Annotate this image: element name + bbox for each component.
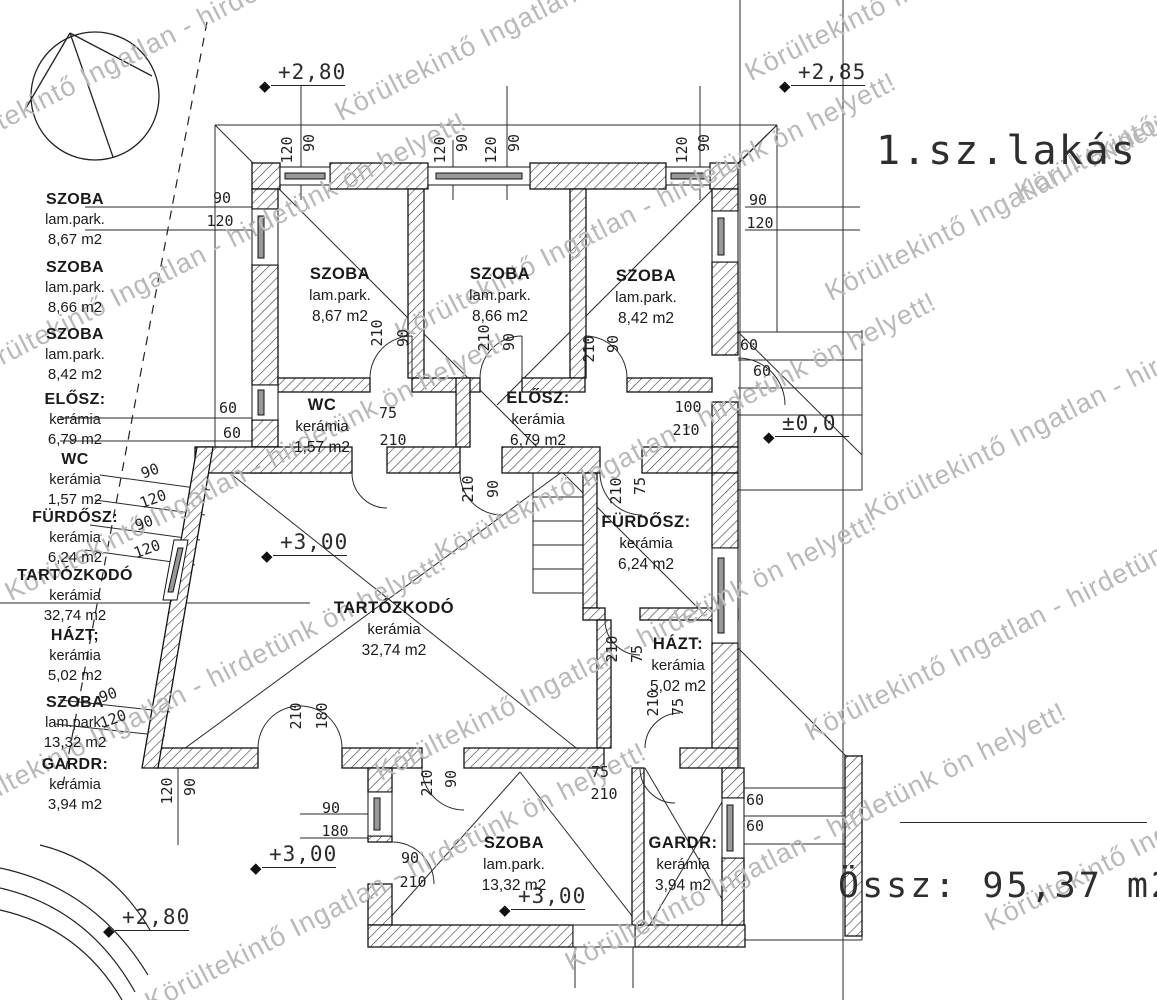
benchmark-icon: ◆ (763, 428, 775, 446)
dimension-label: 210 (580, 335, 598, 362)
dimension-label: 210 (607, 477, 625, 504)
dimension-label: 210 (644, 689, 662, 716)
dimension-label: 90 (322, 799, 340, 817)
room-material: kerámia (294, 416, 350, 437)
dimension-label: 60 (753, 362, 771, 380)
total-area-label: Össz: 95,37 m2 (838, 866, 1157, 906)
dimension-label: 120 (206, 212, 233, 230)
dimension-label: 75 (631, 477, 649, 495)
room-label: SZOBAlam.park.8,66 m2 (469, 264, 531, 327)
benchmark-icon: ◆ (779, 77, 791, 95)
dimension-label: 210 (418, 769, 436, 796)
elevation-value: +3,00 (518, 884, 586, 908)
room-label: TARTÓZKODÓkerámia32,74 m2 (334, 598, 454, 661)
dimension-label: 90 (394, 329, 412, 347)
elevation-value: ±0,0 (782, 411, 837, 435)
room-area: 6,79 m2 (506, 430, 570, 451)
room-name: FÜRDŐSZ: (601, 512, 690, 533)
room-area: 3,94 m2 (649, 875, 718, 896)
room-name: SZOBA (615, 266, 677, 287)
dimension-label: 210 (475, 324, 493, 351)
legend-room-material: lam.park. (0, 278, 150, 298)
dimension-label: 120 (673, 136, 691, 163)
legend-room-area: 5,02 m2 (0, 666, 150, 686)
room-material: lam.park. (482, 854, 547, 875)
legend-room-material: kerámia (0, 586, 150, 606)
room-material: kerámia (506, 409, 570, 430)
dimension-label: 210 (603, 635, 621, 662)
dimension-label: 120 (482, 136, 500, 163)
elevation-line (271, 85, 345, 86)
dimension-label: 210 (379, 431, 406, 449)
dimension-label: 90 (453, 134, 471, 152)
dimension-label: 90 (505, 134, 523, 152)
floorplan-page: Körültekintő Ingatlan - hirdetünk ön hel… (0, 0, 1157, 1000)
legend-divider (900, 822, 1147, 823)
elevation-value: +3,00 (280, 530, 348, 554)
legend-room-area: 3,94 m2 (0, 795, 150, 815)
dimension-label: 210 (590, 785, 617, 803)
legend-room-name: SZOBA (0, 190, 150, 210)
dimension-label: 60 (746, 791, 764, 809)
legend-entry: SZOBAlam.park.8,42 m2 (0, 325, 150, 385)
room-material: lam.park. (469, 285, 531, 306)
legend-room-name: HÁZT; (0, 626, 150, 646)
dimension-label: 90 (500, 333, 518, 351)
elevation-line (511, 909, 585, 910)
elevation-line (115, 930, 189, 931)
legend-room-area: 13,32 m2 (0, 733, 150, 753)
dimension-label: 90 (213, 189, 231, 207)
room-name: ELŐSZ: (506, 388, 570, 409)
room-material: kerámia (334, 619, 454, 640)
room-material: lam.park. (615, 287, 677, 308)
legend-room-material: lam.park. (0, 210, 150, 230)
room-material: kerámia (649, 854, 718, 875)
room-label: FÜRDŐSZ:kerámia6,24 m2 (601, 512, 690, 575)
legend-entry: SZOBAlam.park.13,32 m2 (0, 693, 150, 753)
dimension-label: 180 (321, 822, 348, 840)
legend-room-name: TARTÓZKODÓ (0, 566, 150, 586)
legend-room-material: kerámia (0, 528, 150, 548)
legend-room-name: SZOBA (0, 693, 150, 713)
elevation-value: +3,00 (269, 842, 337, 866)
legend-entry: SZOBAlam.park.8,66 m2 (0, 258, 150, 318)
benchmark-icon: ◆ (259, 77, 271, 95)
room-label: GARDR:kerámia3,94 m2 (649, 833, 718, 896)
dimension-label: 180 (313, 702, 331, 729)
dimension-label: 90 (442, 770, 460, 788)
legend-room-area: 8,67 m2 (0, 230, 150, 250)
room-label: ELŐSZ:kerámia6,79 m2 (506, 388, 570, 451)
room-label: SZOBAlam.park.8,42 m2 (615, 266, 677, 329)
benchmark-icon: ◆ (499, 901, 511, 919)
dimension-label: 90 (695, 134, 713, 152)
room-material: lam.park. (309, 285, 371, 306)
room-name: WC (294, 395, 350, 416)
dimension-label: 90 (181, 778, 199, 796)
legend-room-name: SZOBA (0, 325, 150, 345)
dimension-label: 75 (628, 645, 646, 663)
legend-room-material: kerámia (0, 775, 150, 795)
legend-room-area: 8,66 m2 (0, 298, 150, 318)
legend-room-name: ELŐSZ: (0, 390, 150, 410)
legend-entry: ELŐSZ:kerámia6,79 m2 (0, 390, 150, 450)
dimension-label: 90 (401, 849, 419, 867)
legend-room-material: kerámia (0, 470, 150, 490)
legend-entry: WCkerámia1,57 m2 (0, 450, 150, 510)
benchmark-icon: ◆ (250, 859, 262, 877)
north-symbol (26, 32, 159, 160)
room-label: HÁZT:kerámia5,02 m2 (650, 634, 706, 697)
legend-room-area: 6,24 m2 (0, 548, 150, 568)
legend-entry: SZOBAlam.park.8,67 m2 (0, 190, 150, 250)
dimension-label: 120 (431, 136, 449, 163)
legend-room-name: SZOBA (0, 258, 150, 278)
elevation-value: +2,80 (122, 905, 190, 929)
dimension-label: 210 (399, 873, 426, 891)
room-name: SZOBA (309, 264, 371, 285)
legend-room-name: GARDR: (0, 755, 150, 775)
room-area: 32,74 m2 (334, 640, 454, 661)
legend-room-area: 32,74 m2 (0, 606, 150, 626)
dimension-label: 90 (300, 134, 318, 152)
dimension-label: 100 (674, 398, 701, 416)
legend-room-material: kerámia (0, 410, 150, 430)
benchmark-icon: ◆ (261, 547, 273, 565)
dimension-label: 90 (604, 335, 622, 353)
elevation-line (775, 436, 849, 437)
legend-room-name: FÜRDŐSZ: (0, 508, 150, 528)
plan-title: 1.sz.lakás (876, 128, 1137, 174)
room-area: 8,67 m2 (309, 306, 371, 327)
room-area: 1,57 m2 (294, 437, 350, 458)
dimension-label: 120 (746, 214, 773, 232)
dimension-label: 120 (158, 777, 176, 804)
dimension-label: 60 (223, 424, 241, 442)
legend-room-material: lam.park. (0, 713, 150, 733)
legend-entry: GARDR:kerámia3,94 m2 (0, 755, 150, 815)
dimension-label: 90 (484, 480, 502, 498)
dimension-label: 210 (368, 319, 386, 346)
elevation-line (262, 867, 336, 868)
elevation-line (791, 85, 865, 86)
room-name: GARDR: (649, 833, 718, 854)
dimension-label: 75 (591, 763, 609, 781)
elevation-value: +2,85 (798, 60, 866, 84)
room-name: HÁZT: (650, 634, 706, 655)
legend-entry: HÁZT;kerámia5,02 m2 (0, 626, 150, 686)
dimension-label: 75 (669, 698, 687, 716)
legend-room-name: WC (0, 450, 150, 470)
elevation-value: +2,80 (278, 60, 346, 84)
legend-entry: TARTÓZKODÓkerámia32,74 m2 (0, 566, 150, 626)
dimension-label: 60 (219, 399, 237, 417)
legend-entry: FÜRDŐSZ:kerámia6,24 m2 (0, 508, 150, 568)
dimension-label: 60 (740, 336, 758, 354)
room-label: SZOBAlam.park.8,67 m2 (309, 264, 371, 327)
legend-room-area: 8,42 m2 (0, 365, 150, 385)
dimension-label: 60 (746, 817, 764, 835)
benchmark-icon: ◆ (103, 922, 115, 940)
room-name: SZOBA (482, 833, 547, 854)
room-material: kerámia (601, 533, 690, 554)
room-name: TARTÓZKODÓ (334, 598, 454, 619)
room-area: 6,24 m2 (601, 554, 690, 575)
room-material: kerámia (650, 655, 706, 676)
dimension-label: 210 (287, 702, 305, 729)
legend-room-material: lam.park. (0, 345, 150, 365)
legend-room-area: 6,79 m2 (0, 430, 150, 450)
room-name: SZOBA (469, 264, 531, 285)
room-area: 8,42 m2 (615, 308, 677, 329)
elevation-line (273, 555, 347, 556)
dimension-label: 90 (749, 191, 767, 209)
dimension-label: 75 (379, 404, 397, 422)
legend-room-material: kerámia (0, 646, 150, 666)
legend-room-area: 1,57 m2 (0, 490, 150, 510)
dimension-label: 210 (672, 421, 699, 439)
dimension-label: 120 (278, 136, 296, 163)
dimension-label: 210 (459, 475, 477, 502)
room-label: WCkerámia1,57 m2 (294, 395, 350, 458)
